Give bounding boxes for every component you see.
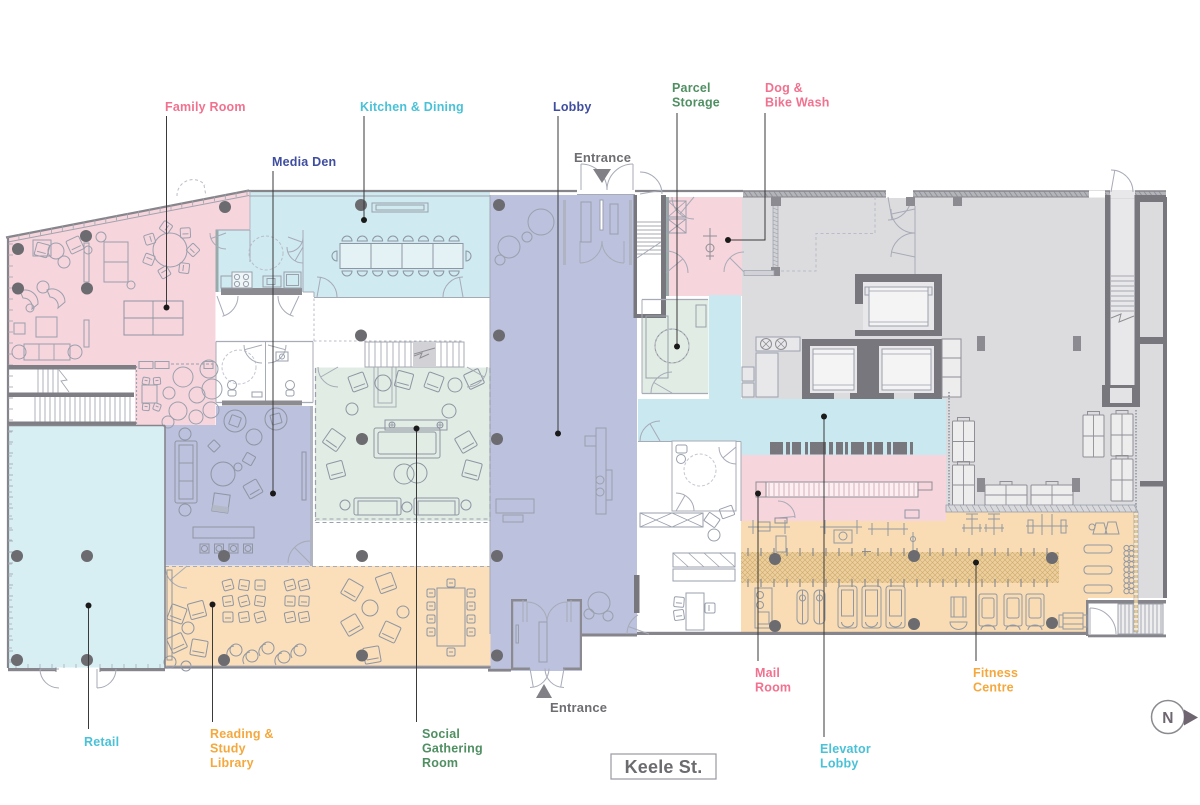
svg-text:Lobby: Lobby <box>820 757 859 771</box>
svg-text:Entrance: Entrance <box>574 150 631 165</box>
svg-text:Bike Wash: Bike Wash <box>765 96 830 110</box>
svg-text:Family Room: Family Room <box>165 100 246 114</box>
svg-text:Kitchen & Dining: Kitchen & Dining <box>360 100 464 114</box>
svg-text:Parcel: Parcel <box>672 81 711 95</box>
svg-text:Social: Social <box>422 727 460 741</box>
svg-text:Gathering: Gathering <box>422 742 483 756</box>
svg-text:Study: Study <box>210 742 246 756</box>
svg-text:Retail: Retail <box>84 735 119 749</box>
svg-text:Mail: Mail <box>755 666 780 680</box>
svg-text:Centre: Centre <box>973 681 1014 695</box>
svg-text:Room: Room <box>755 681 791 695</box>
svg-text:Library: Library <box>210 756 254 770</box>
svg-text:Lobby: Lobby <box>553 100 592 114</box>
svg-text:N: N <box>1162 710 1173 727</box>
svg-text:Elevator: Elevator <box>820 742 871 756</box>
svg-text:Reading &: Reading & <box>210 727 274 741</box>
svg-text:Media Den: Media Den <box>272 155 336 169</box>
svg-text:Room: Room <box>422 756 458 770</box>
svg-text:Dog &: Dog & <box>765 81 803 95</box>
svg-text:Entrance: Entrance <box>550 700 607 715</box>
svg-text:Fitness: Fitness <box>973 666 1018 680</box>
svg-text:Keele St.: Keele St. <box>625 757 703 777</box>
svg-text:Storage: Storage <box>672 96 720 110</box>
